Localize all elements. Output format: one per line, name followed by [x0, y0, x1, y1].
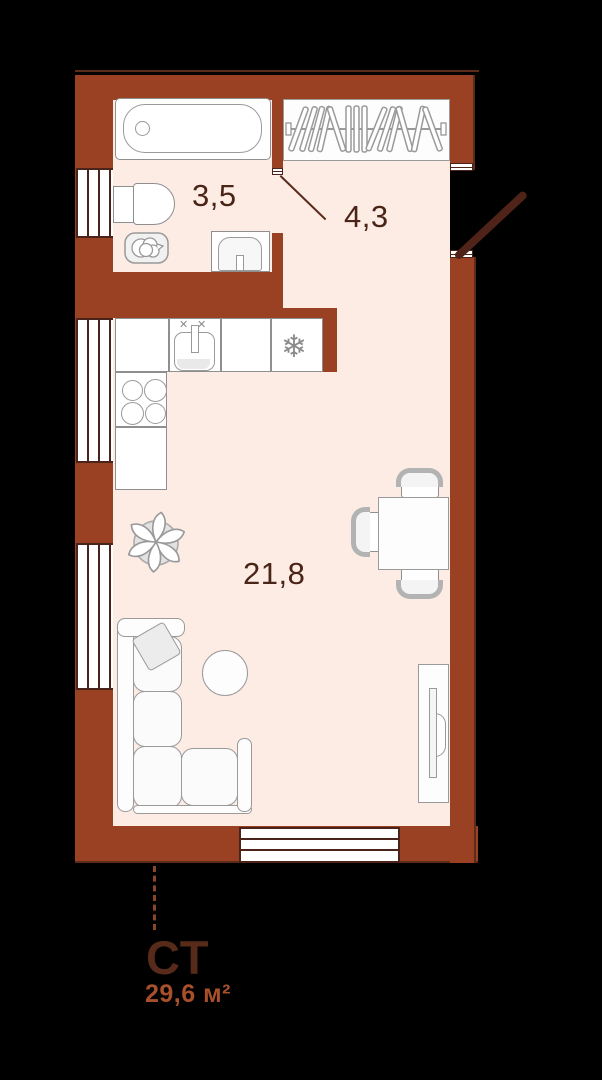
wall-kitchen-stub — [323, 308, 337, 372]
room-label-bathroom: 3,5 — [192, 178, 237, 214]
wall-bathroom-right-lower — [272, 233, 283, 272]
bath-mat-icon — [124, 232, 169, 264]
dining-table — [378, 497, 449, 570]
coffee-table — [202, 650, 248, 696]
kitchen-faucet-icon — [191, 325, 199, 353]
wall-bathroom-bottom — [113, 272, 283, 318]
unit-area-label: 29,6 м² — [145, 980, 231, 1009]
window-living-left — [76, 543, 113, 690]
unit-type-label: СТ — [146, 930, 209, 985]
sofa-front-edge — [133, 805, 252, 814]
chair-left-back — [351, 507, 370, 557]
wall-right-lower — [450, 257, 476, 863]
wall-trim-top — [75, 70, 479, 72]
room-label-hallway: 4,3 — [344, 199, 389, 235]
fridge-snowflake-icon: ❄ — [281, 331, 307, 362]
kitchen-counter-lower — [115, 427, 167, 490]
sofa-cushion-corner — [133, 746, 182, 808]
window-bathroom — [76, 168, 113, 238]
bathtub — [115, 98, 271, 160]
toilet-bowl — [133, 183, 175, 225]
wall-cap-bathroom-door — [272, 168, 283, 175]
window-kitchen — [76, 318, 113, 463]
sofa-arm-right — [237, 738, 252, 812]
wall-bathroom-right-upper — [272, 100, 283, 168]
room-label-living: 21,8 — [243, 556, 305, 592]
wall-top — [75, 75, 473, 100]
bathtub-drain-icon — [135, 121, 150, 136]
chair-top-back — [396, 468, 443, 487]
wall-right-upper — [450, 75, 475, 170]
stove — [115, 372, 167, 427]
faucet-icon — [236, 255, 244, 271]
tv-screen — [429, 688, 437, 778]
wall-cap-entrance-top — [450, 163, 473, 171]
entrance-door-leaf — [453, 190, 528, 261]
sofa-chaise-seat — [181, 748, 238, 806]
window-living-bottom — [239, 827, 400, 863]
bathroom-sink — [211, 231, 270, 272]
faucet-cross-icon: ✕ — [179, 320, 188, 331]
floor-plan: ✕ ✕ ❄ — [0, 0, 602, 1080]
plant-icon — [122, 508, 190, 576]
toilet-tank — [113, 186, 134, 223]
leader-line — [153, 866, 156, 930]
wardrobe — [283, 99, 450, 161]
sofa-back — [117, 618, 134, 812]
hangers-icon — [284, 100, 448, 158]
chair-bottom-back — [396, 580, 443, 599]
sofa-cushion — [133, 691, 182, 747]
